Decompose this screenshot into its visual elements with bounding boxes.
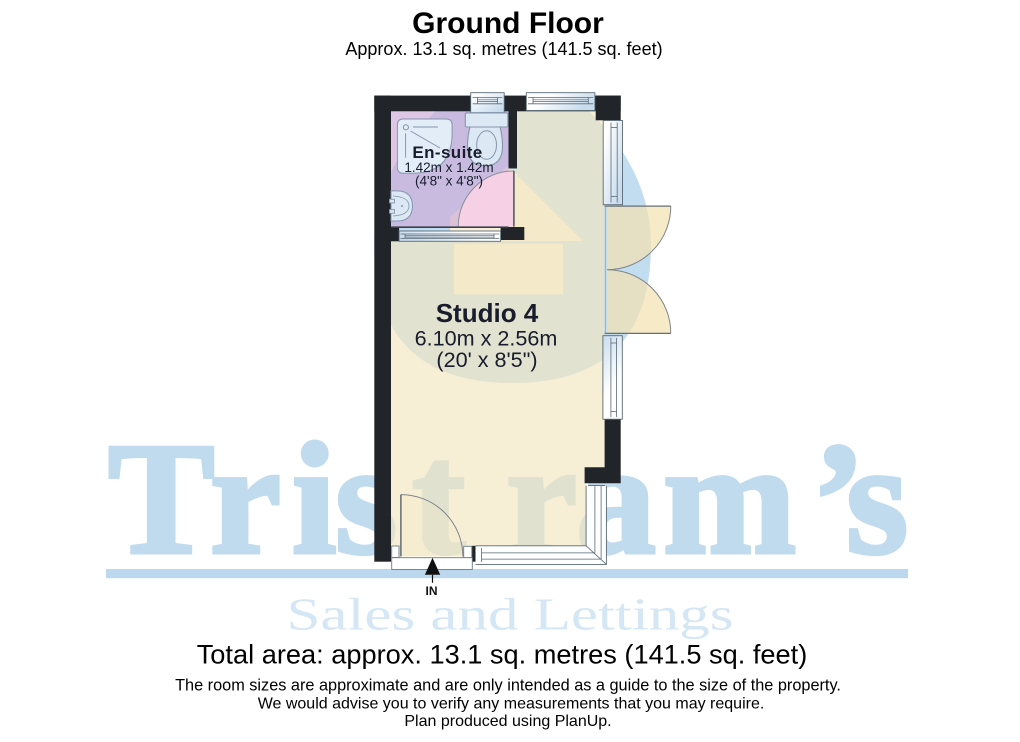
svg-text:Sales and Lettings: Sales and Lettings — [287, 588, 734, 639]
svg-text:Studio 4: Studio 4 — [436, 298, 539, 328]
svg-text:(4'8" x 4'8"): (4'8" x 4'8") — [415, 174, 483, 189]
svg-text:Approx. 13.1 sq. metres (141.5: Approx. 13.1 sq. metres (141.5 sq. feet) — [345, 39, 662, 59]
svg-text:Ground Floor: Ground Floor — [412, 7, 604, 40]
svg-text:Total area: approx. 13.1 sq. m: Total area: approx. 13.1 sq. metres (141… — [197, 639, 808, 670]
svg-text:Plan produced using PlanUp.: Plan produced using PlanUp. — [404, 713, 611, 730]
svg-text:(20' x 8'5"): (20' x 8'5") — [436, 347, 537, 372]
svg-text:We would advise you to verify: We would advise you to verify any measur… — [258, 696, 765, 713]
svg-text:The room sizes are approximate: The room sizes are approximate and are o… — [175, 677, 841, 695]
svg-text:IN: IN — [426, 584, 438, 598]
